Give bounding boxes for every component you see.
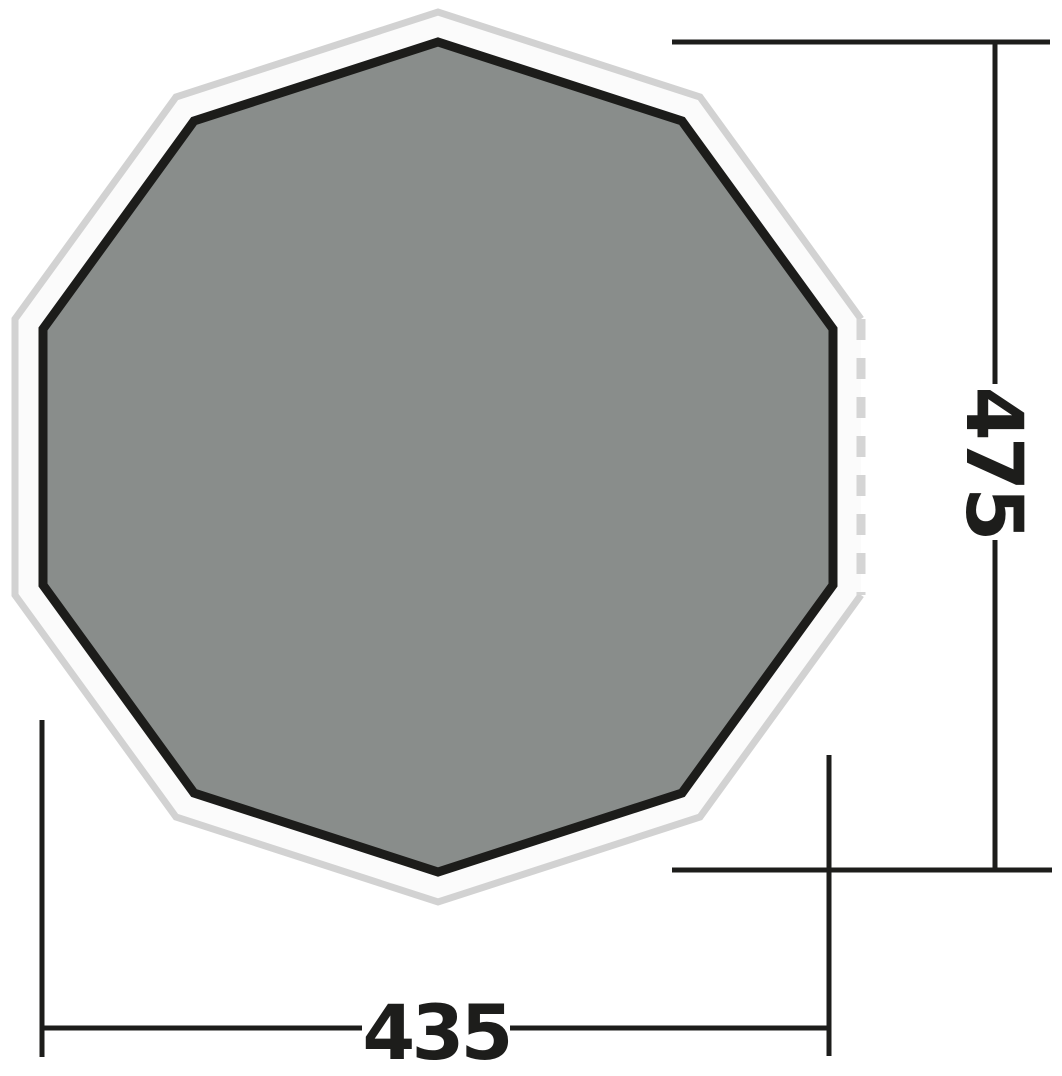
- footprint-dimension-diagram: 475 435: [0, 0, 1062, 1076]
- diagram-canvas: 475 435: [0, 0, 1062, 1076]
- height-dimension-label: 475: [948, 386, 1038, 537]
- inner-floor-panel: [43, 42, 833, 872]
- width-dimension-label: 435: [362, 988, 509, 1076]
